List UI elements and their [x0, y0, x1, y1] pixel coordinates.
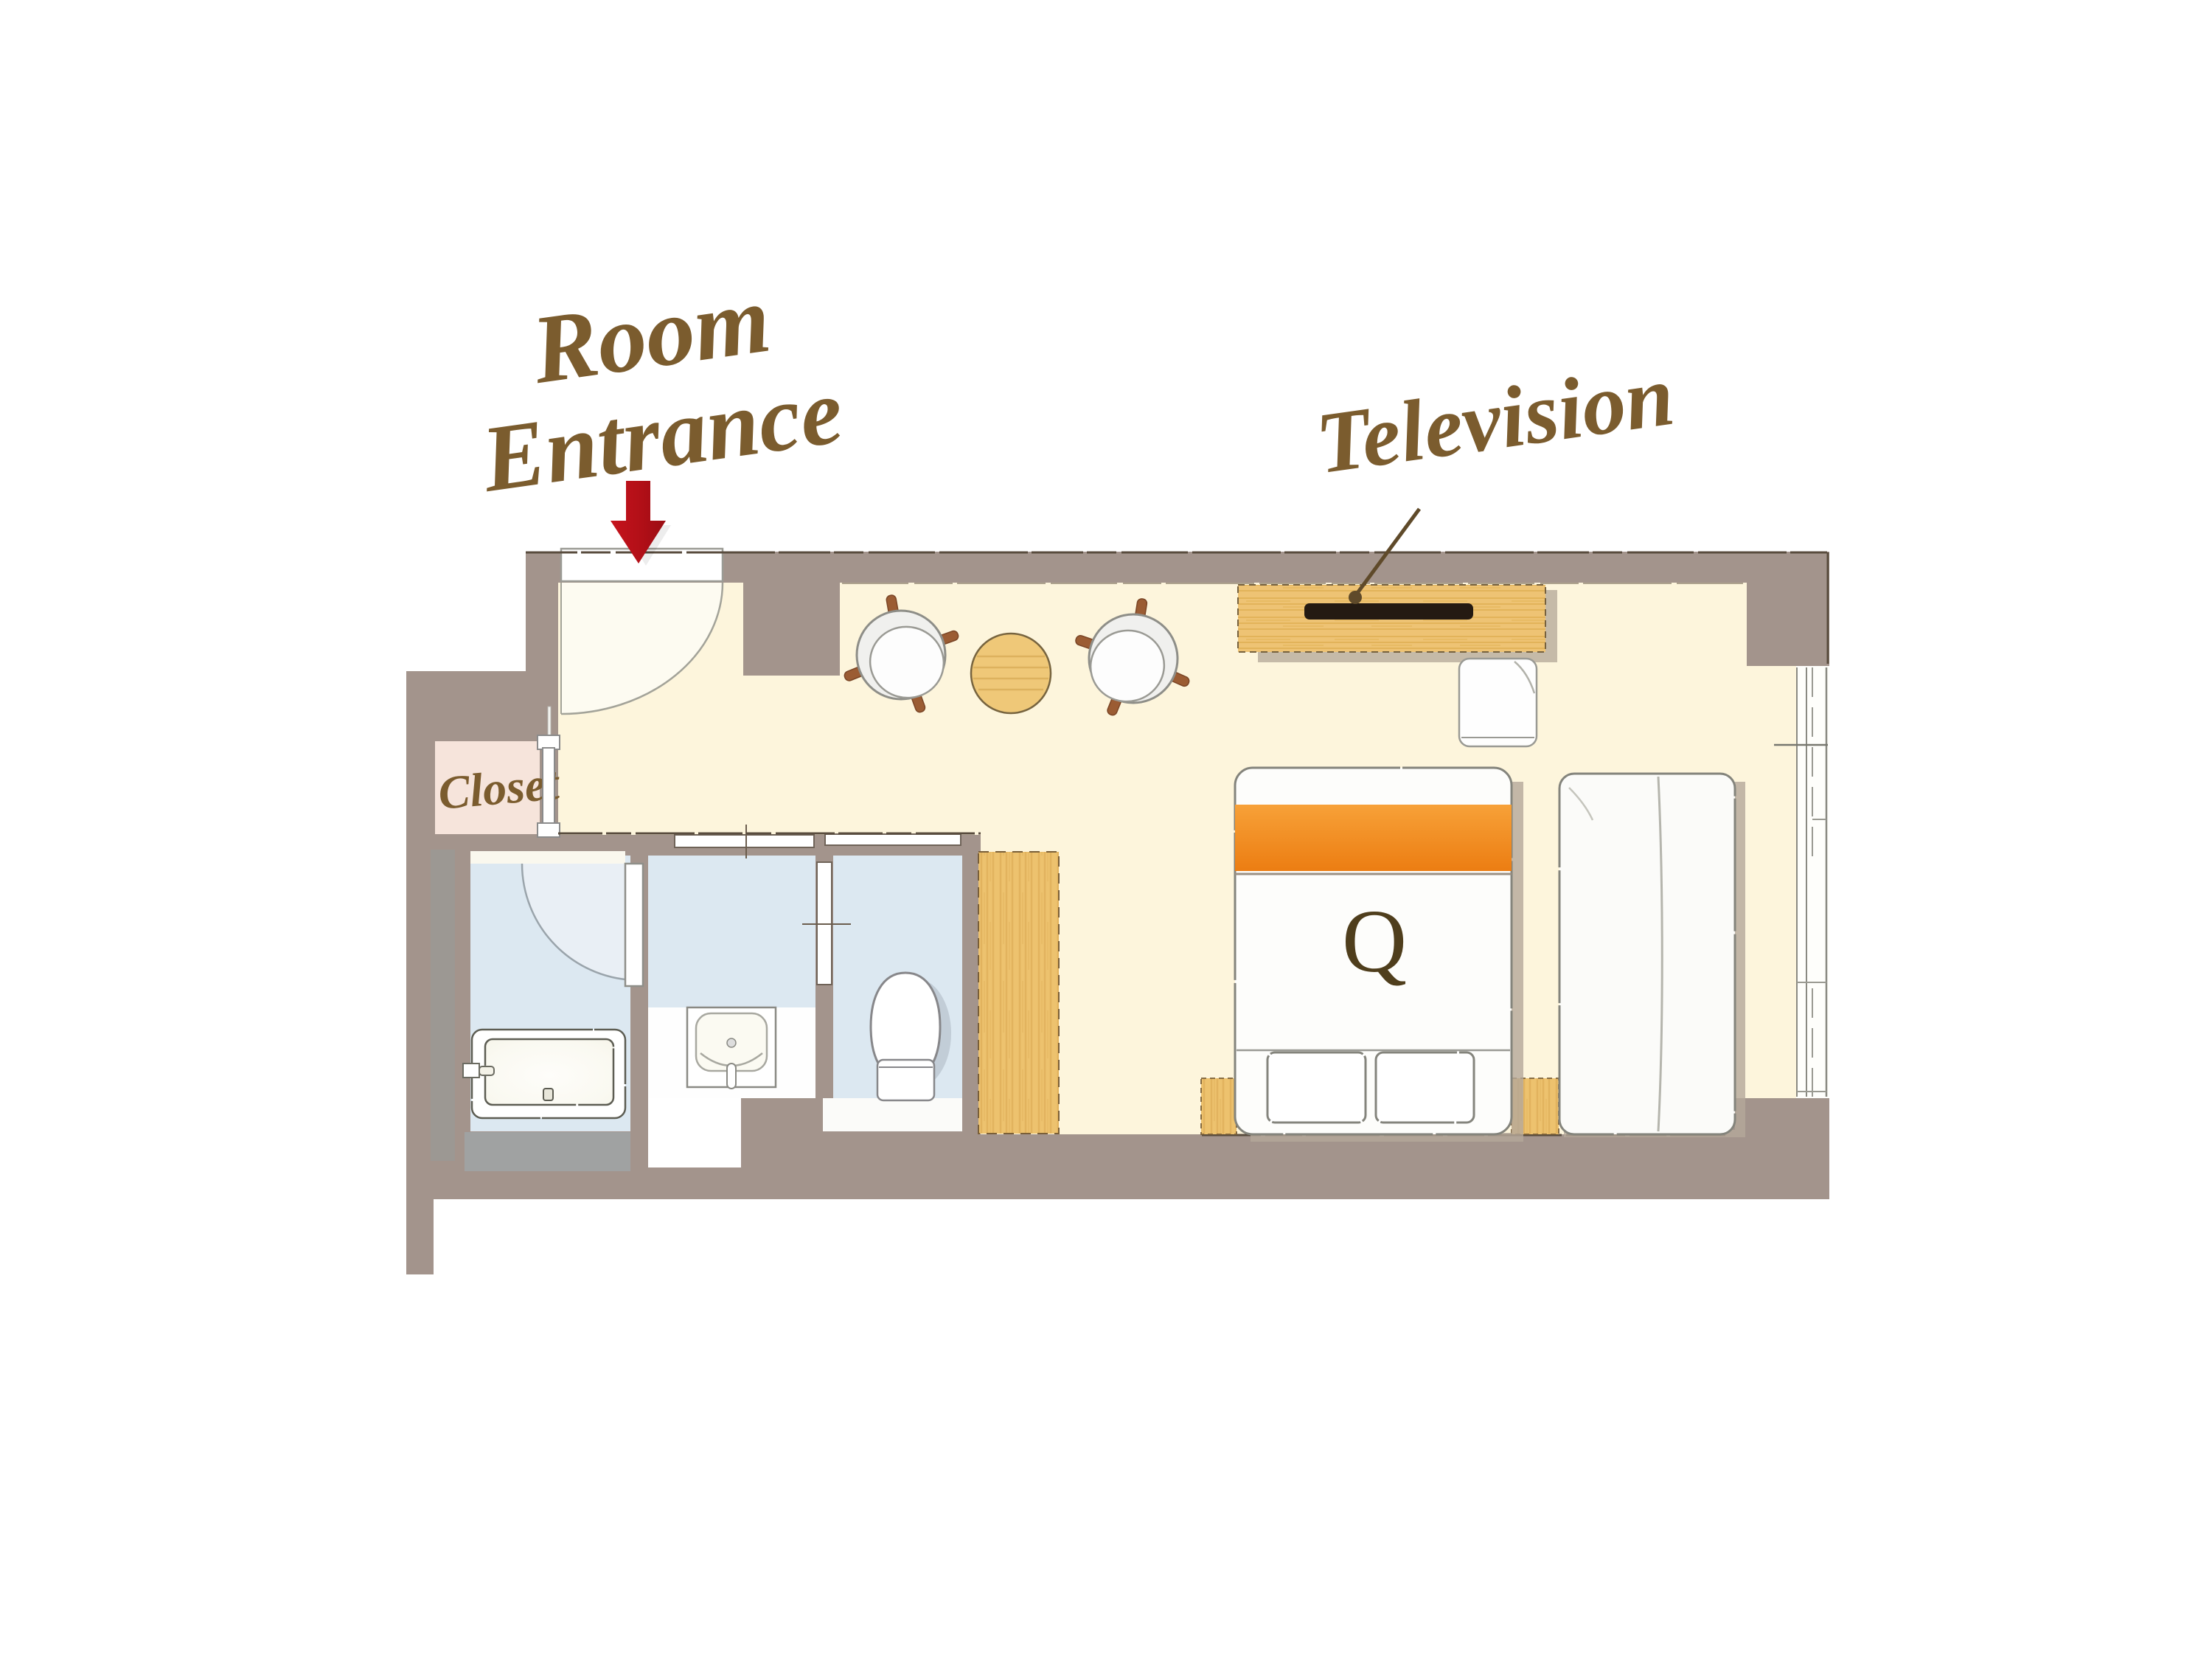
svg-text:Q: Q	[1342, 892, 1407, 991]
